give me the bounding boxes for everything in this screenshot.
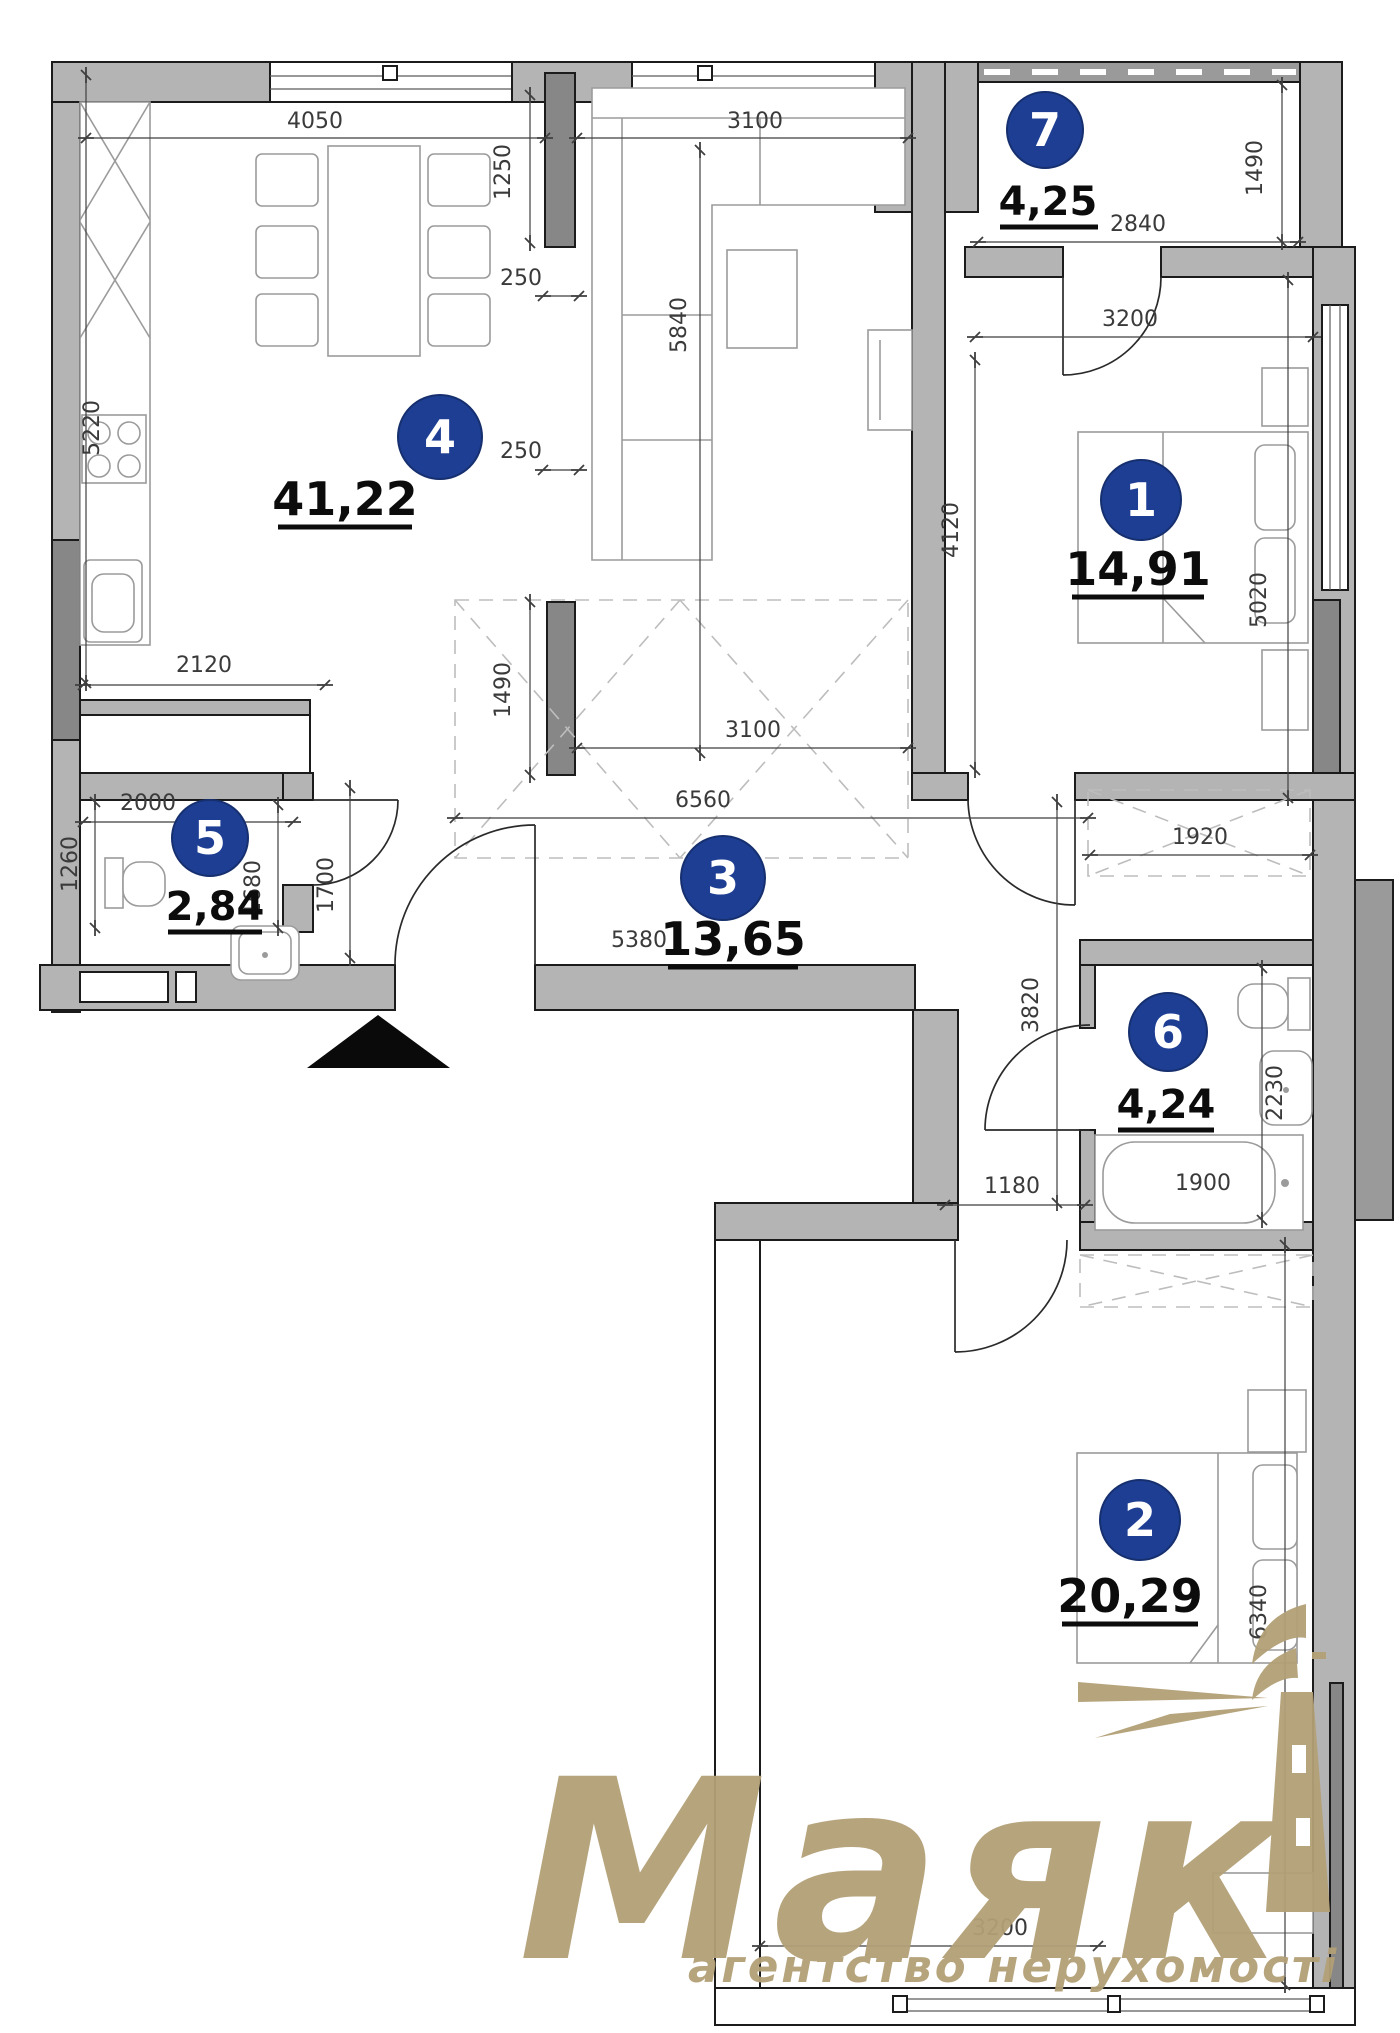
dim-1700: 1700 [314, 857, 339, 913]
dim-1260: 1260 [58, 836, 83, 892]
dim-1920: 1920 [1172, 825, 1228, 850]
room2-number: 2 [1124, 1493, 1156, 1547]
floorplan-drawing: 5220 4050 3100 1250 250 250 1490 5840 28… [0, 0, 1400, 2033]
wall-hall-bottom-right [535, 965, 915, 1010]
dim-2230: 2230 [1263, 1065, 1288, 1121]
bedroom2-door-arc [955, 1240, 1067, 1352]
dim-2120: 2120 [176, 653, 232, 678]
coffee-table [727, 250, 797, 348]
room3-area: 13,65 [660, 912, 806, 966]
chair [428, 294, 490, 346]
room6-area: 4,24 [1117, 1082, 1216, 1128]
dim-250-low: 250 [500, 439, 542, 464]
wall-wc-right-lower [283, 885, 313, 932]
toilet-bowl [123, 862, 165, 906]
dim-5220: 5220 [80, 400, 105, 456]
wall-living-bedroom1 [912, 62, 945, 780]
dim-1900: 1900 [1175, 1171, 1231, 1196]
room3-number: 3 [707, 851, 739, 905]
dim-5020: 5020 [1247, 572, 1272, 628]
wall-balcony-right [1300, 62, 1342, 247]
dim-6560: 6560 [675, 788, 731, 813]
toilet-tank-bath [1288, 978, 1310, 1030]
wall-bath-top [1080, 940, 1313, 965]
dim-1490-pier: 1490 [491, 662, 516, 718]
floorplan-page: 5220 4050 3100 1250 250 250 1490 5840 28… [0, 0, 1400, 2033]
chair [256, 154, 318, 206]
wall-top-corner [52, 62, 270, 102]
wardrobe-hall [455, 600, 908, 858]
dim-1180: 1180 [984, 1174, 1040, 1199]
dim-3200-bedroom1: 3200 [1102, 307, 1158, 332]
wall-bedroom1-bottom-left [912, 773, 968, 800]
pillow [1255, 445, 1295, 530]
dim-3100-hall: 3100 [725, 718, 781, 743]
wall-bedroom2-top [715, 1203, 958, 1240]
room4-number: 4 [424, 410, 456, 464]
room5-area: 2,84 [166, 884, 265, 930]
tv-unit [868, 330, 912, 430]
wall-wc-top [80, 773, 313, 800]
dim-4120: 4120 [939, 502, 964, 558]
wall-closet-top [80, 700, 310, 715]
entrance-arrow [307, 1015, 450, 1068]
room4-area: 41,22 [272, 472, 418, 526]
room5-number: 5 [194, 811, 226, 865]
wall-bath-left-upper [1080, 965, 1095, 1028]
dim-5840: 5840 [667, 297, 692, 353]
entrance-door-arc [395, 825, 535, 965]
room7-area: 4,25 [999, 179, 1098, 225]
room2-area: 20,29 [1057, 1569, 1203, 1623]
window-post [1310, 1996, 1324, 2012]
dim-1250: 1250 [491, 144, 516, 200]
wall-left-dark-segment [52, 540, 80, 740]
dim-1490-balcony: 1490 [1243, 140, 1268, 196]
column-top [545, 73, 575, 247]
wall-corridor-left [913, 1010, 958, 1203]
chair [256, 226, 318, 278]
window-bedroom1 [1322, 305, 1348, 590]
column-lower [547, 602, 575, 775]
wall-neighbor-shaft [1355, 880, 1393, 1220]
closet-niche [80, 715, 310, 773]
watermark: Маяк агентство нерухомості [518, 1604, 1339, 2017]
room7-number: 7 [1029, 103, 1061, 157]
wall-wc-right-upper [283, 773, 313, 800]
pillow [1253, 1465, 1297, 1549]
wardrobe-bedroom2 [1080, 1255, 1313, 1307]
room1-area: 14,91 [1065, 542, 1211, 596]
dim-3100-top: 3100 [727, 109, 783, 134]
toilet-bowl-bath [1238, 984, 1288, 1028]
dim-2000: 2000 [120, 791, 176, 816]
bedroom1-door-arc [968, 800, 1075, 905]
dim-4050: 4050 [287, 109, 343, 134]
bath-door-arc [985, 1025, 1090, 1130]
dining-table [328, 146, 420, 356]
wall-niche-small [176, 972, 196, 1002]
window-mullion [383, 66, 397, 80]
nightstand [1262, 368, 1308, 426]
dim-5380: 5380 [611, 928, 667, 953]
toilet-tank [105, 858, 123, 908]
nightstand-bedroom2 [1248, 1390, 1306, 1452]
dim-2840: 2840 [1110, 212, 1166, 237]
dim-3820: 3820 [1019, 977, 1044, 1033]
window-mullion [698, 66, 712, 80]
wall-niche-meter [80, 972, 168, 1002]
wall-bedroom1-bottom-right [1075, 773, 1355, 800]
chair [428, 226, 490, 278]
nightstand [1262, 650, 1308, 730]
dim-250-top: 250 [500, 266, 542, 291]
room6-number: 6 [1152, 1005, 1184, 1059]
room1-number: 1 [1125, 473, 1157, 527]
wall-bedroom1-right-dark [1313, 600, 1340, 775]
chair [256, 294, 318, 346]
wall-bedroom1-top-left [965, 247, 1063, 277]
chair [428, 154, 490, 206]
brand-tagline: агентство нерухомості [688, 1940, 1339, 1993]
